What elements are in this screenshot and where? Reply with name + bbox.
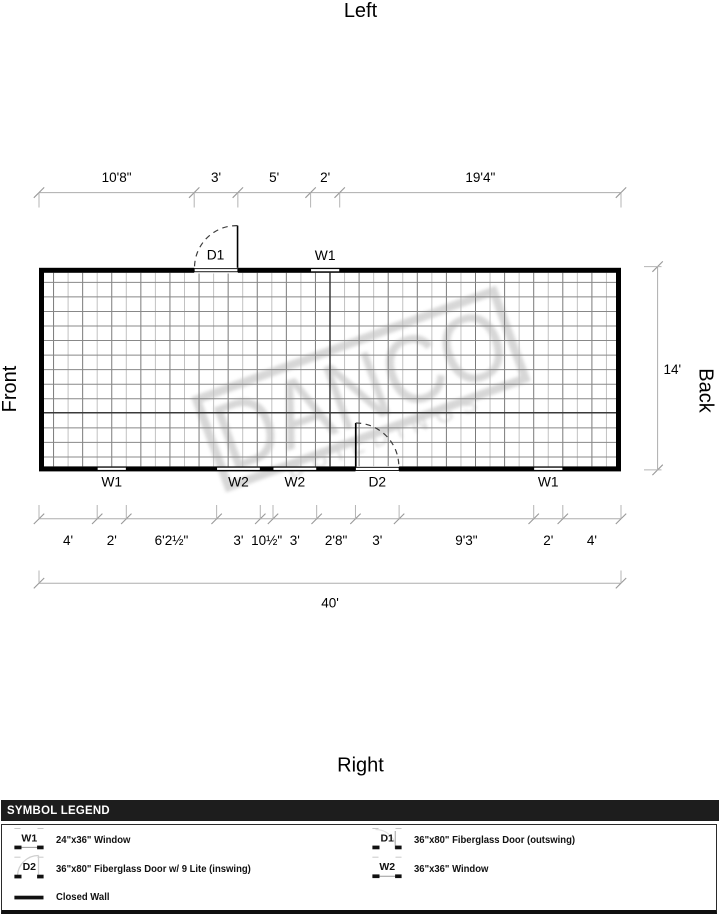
svg-text:2': 2' (543, 533, 553, 548)
svg-text:W2: W2 (379, 861, 395, 873)
svg-text:W2: W2 (284, 475, 305, 490)
svg-text:D2: D2 (23, 861, 37, 873)
svg-text:5': 5' (269, 170, 279, 185)
svg-text:2': 2' (107, 533, 117, 548)
svg-text:W1: W1 (21, 833, 37, 845)
svg-text:10'8": 10'8" (102, 170, 132, 185)
svg-text:Back: Back (695, 368, 717, 413)
svg-text:2'8": 2'8" (325, 533, 348, 548)
svg-text:W1: W1 (101, 475, 122, 490)
svg-text:19'4": 19'4" (465, 170, 495, 185)
svg-text:Left: Left (344, 0, 378, 22)
svg-text:40': 40' (321, 596, 339, 611)
svg-text:W2: W2 (228, 475, 249, 490)
svg-text:3': 3' (290, 533, 300, 548)
svg-text:Right: Right (337, 754, 384, 776)
svg-text:W1: W1 (315, 248, 336, 263)
svg-text:W1: W1 (538, 475, 559, 490)
svg-text:9'3": 9'3" (455, 533, 478, 548)
svg-text:4': 4' (587, 533, 597, 548)
svg-text:6'2½": 6'2½" (155, 533, 189, 548)
svg-text:14': 14' (664, 362, 682, 377)
svg-text:D2: D2 (368, 475, 386, 490)
svg-text:3': 3' (233, 533, 243, 548)
svg-text:D1: D1 (380, 833, 394, 845)
svg-text:4': 4' (63, 533, 73, 548)
svg-text:3': 3' (211, 170, 221, 185)
svg-text:10½": 10½" (251, 533, 282, 548)
svg-text:2': 2' (320, 170, 330, 185)
svg-text:D1: D1 (207, 247, 225, 262)
svg-text:3': 3' (372, 533, 382, 548)
svg-text:Front: Front (0, 365, 21, 412)
